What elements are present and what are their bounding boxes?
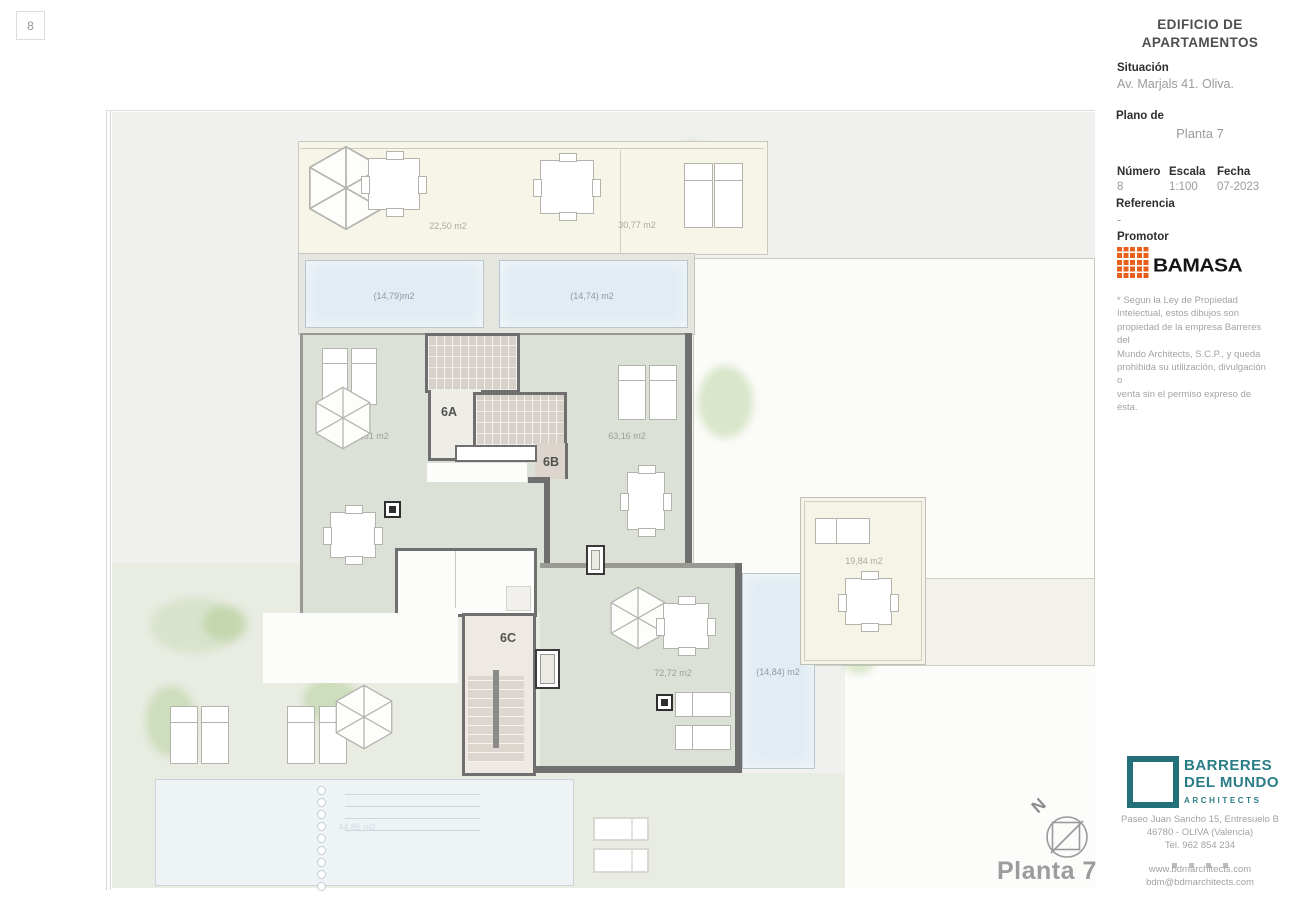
- email: bdm@bdmarchitects.com: [1112, 877, 1288, 888]
- project-title: EDIFICIO DE APARTAMENTOS: [1100, 16, 1300, 52]
- area-label: (14,74) m2: [570, 291, 614, 301]
- table-icon: [368, 158, 420, 210]
- phone: Tel. 962 854 234: [1112, 840, 1288, 851]
- north-arrow-icon: [1043, 813, 1091, 861]
- area-label: 72,72 m2: [654, 668, 692, 678]
- disclaimer-line: Mundo Architects, S.C.P., y queda: [1117, 348, 1273, 361]
- umbrella-icon: [311, 386, 375, 450]
- meta-labels-row: Número Escala Fecha: [1117, 166, 1250, 178]
- plant-icon: [150, 598, 240, 653]
- sun-lounger-icon: [201, 706, 229, 764]
- wall: [544, 477, 550, 567]
- plant-icon: [698, 366, 753, 438]
- disclaimer-line: propiedad de la empresa Barreres del: [1117, 321, 1273, 348]
- roof-structure: [263, 613, 458, 683]
- project-title-line2: APARTAMENTOS: [1100, 34, 1300, 52]
- unit-label-6a: 6A: [441, 405, 457, 419]
- area-label: 30,77 m2: [618, 220, 656, 230]
- website: www.bdmarchitects.com: [1112, 864, 1288, 875]
- corridor: [455, 445, 537, 462]
- plan-floor-label: Planta 7: [997, 857, 1097, 886]
- referencia-label: Referencia: [1116, 198, 1175, 210]
- pool-garden: [155, 779, 574, 886]
- promotor-label: Promotor: [1117, 231, 1169, 243]
- disclaimer: * Segun la Ley de Propiedad Intelectual,…: [1117, 294, 1273, 415]
- area-label: (14,79)m2: [373, 291, 414, 301]
- escala-value: 1:100: [1169, 181, 1217, 193]
- landing: [427, 463, 527, 482]
- wall: [685, 333, 692, 570]
- area-label: (14,84) m2: [756, 667, 800, 677]
- table-icon: [663, 603, 709, 649]
- situacion-label: Situación: [1117, 62, 1169, 74]
- room-divider: [455, 551, 456, 608]
- title-block: EDIFICIO DE APARTAMENTOS Situación Av. M…: [1100, 0, 1300, 900]
- door-icon: [586, 545, 605, 575]
- area-label: 19,84 m2: [845, 556, 883, 566]
- garden-area: [545, 773, 845, 888]
- drawing-sheet: 8 22,50 m2 30,77 m2: [0, 0, 1300, 900]
- disclaimer-line: * Segun la Ley de Propiedad: [1117, 294, 1273, 307]
- sheet-number-badge: 8: [16, 11, 45, 40]
- sun-lounger-icon: [618, 365, 646, 420]
- project-title-line1: EDIFICIO DE: [1100, 16, 1300, 34]
- address-line1: Paseo Juan Sancho 15, Entresuelo B: [1112, 814, 1288, 825]
- numero-value: 8: [1117, 181, 1169, 193]
- wall: [540, 563, 742, 568]
- sun-lounger-icon: [714, 163, 743, 228]
- area-label: 22,50 m2: [429, 221, 467, 231]
- sun-lounger-icon: [287, 706, 315, 764]
- fecha-value: 07-2023: [1217, 181, 1259, 193]
- pool-ladder: [345, 806, 480, 807]
- unit-label-6b: 6B: [543, 455, 559, 469]
- numero-label: Número: [1117, 166, 1169, 178]
- fecha-label: Fecha: [1217, 166, 1250, 178]
- pool-ladder: [345, 794, 480, 795]
- meta-values-row: 8 1:100 07-2023: [1117, 181, 1259, 193]
- bdm-name-line1: BARRERES: [1184, 757, 1279, 774]
- column-icon: [656, 694, 673, 711]
- bdm-logo-icon: [1127, 756, 1179, 808]
- wall: [300, 333, 303, 613]
- unit-label-6c: 6C: [500, 631, 516, 645]
- column-icon: [384, 501, 401, 518]
- pool-steps: [317, 786, 326, 891]
- wall: [735, 563, 742, 769]
- dining-table-icon: [627, 472, 665, 530]
- situacion-value: Av. Marjals 41. Oliva.: [1117, 77, 1234, 91]
- bamasa-logo: BAMASA: [1117, 247, 1242, 278]
- referencia-value: -: [1117, 213, 1121, 227]
- stair-core-6a: [425, 333, 520, 393]
- room-detail: [506, 586, 531, 611]
- bamasa-grid-icon: [1117, 247, 1150, 278]
- sheet-number: 8: [27, 19, 34, 33]
- door-icon: [535, 649, 560, 689]
- disclaimer-line: Intelectual, estos dibujos son: [1117, 307, 1273, 320]
- plan-frame-line: [110, 110, 111, 890]
- plan-frame-line: [106, 110, 107, 890]
- bamasa-wordmark: BAMASA: [1153, 255, 1242, 277]
- roof-vent: [593, 848, 649, 873]
- bdm-subtitle: ARCHITECTS: [1184, 796, 1279, 805]
- umbrella-icon: [331, 684, 397, 750]
- sun-lounger-icon: [675, 692, 731, 717]
- terrace-divider: [620, 150, 621, 253]
- roof-vent: [593, 817, 649, 841]
- table-icon: [330, 512, 376, 558]
- sun-lounger-icon: [684, 163, 713, 228]
- sun-lounger-icon: [170, 706, 198, 764]
- plan-frame-line: [106, 110, 1095, 111]
- plano-value: Planta 7: [1100, 126, 1300, 141]
- bdm-name: BARRERES DEL MUNDO ARCHITECTS: [1184, 757, 1279, 805]
- disclaimer-line: venta sin el permiso expreso de ésta.: [1117, 388, 1273, 415]
- escala-label: Escala: [1169, 166, 1217, 178]
- table-icon: [845, 578, 892, 625]
- area-label: 44,85 m2: [338, 822, 376, 832]
- table-icon: [540, 160, 594, 214]
- stair-6c-wall: [493, 670, 499, 748]
- address-line2: 46780 - OLIVA (Valencia): [1112, 827, 1288, 838]
- bdm-name-line2: DEL MUNDO: [1184, 774, 1279, 791]
- stair-core-6b: [473, 392, 567, 448]
- sun-lounger-icon: [649, 365, 677, 420]
- area-label: 63,16 m2: [608, 431, 646, 441]
- disclaimer-line: prohibida su utilización, divulgación o: [1117, 361, 1273, 388]
- plano-label: Plano de: [1116, 110, 1164, 122]
- sun-lounger-icon: [675, 725, 731, 750]
- wall: [528, 477, 550, 483]
- pool-ladder: [345, 818, 480, 819]
- sofa-icon: [815, 518, 870, 544]
